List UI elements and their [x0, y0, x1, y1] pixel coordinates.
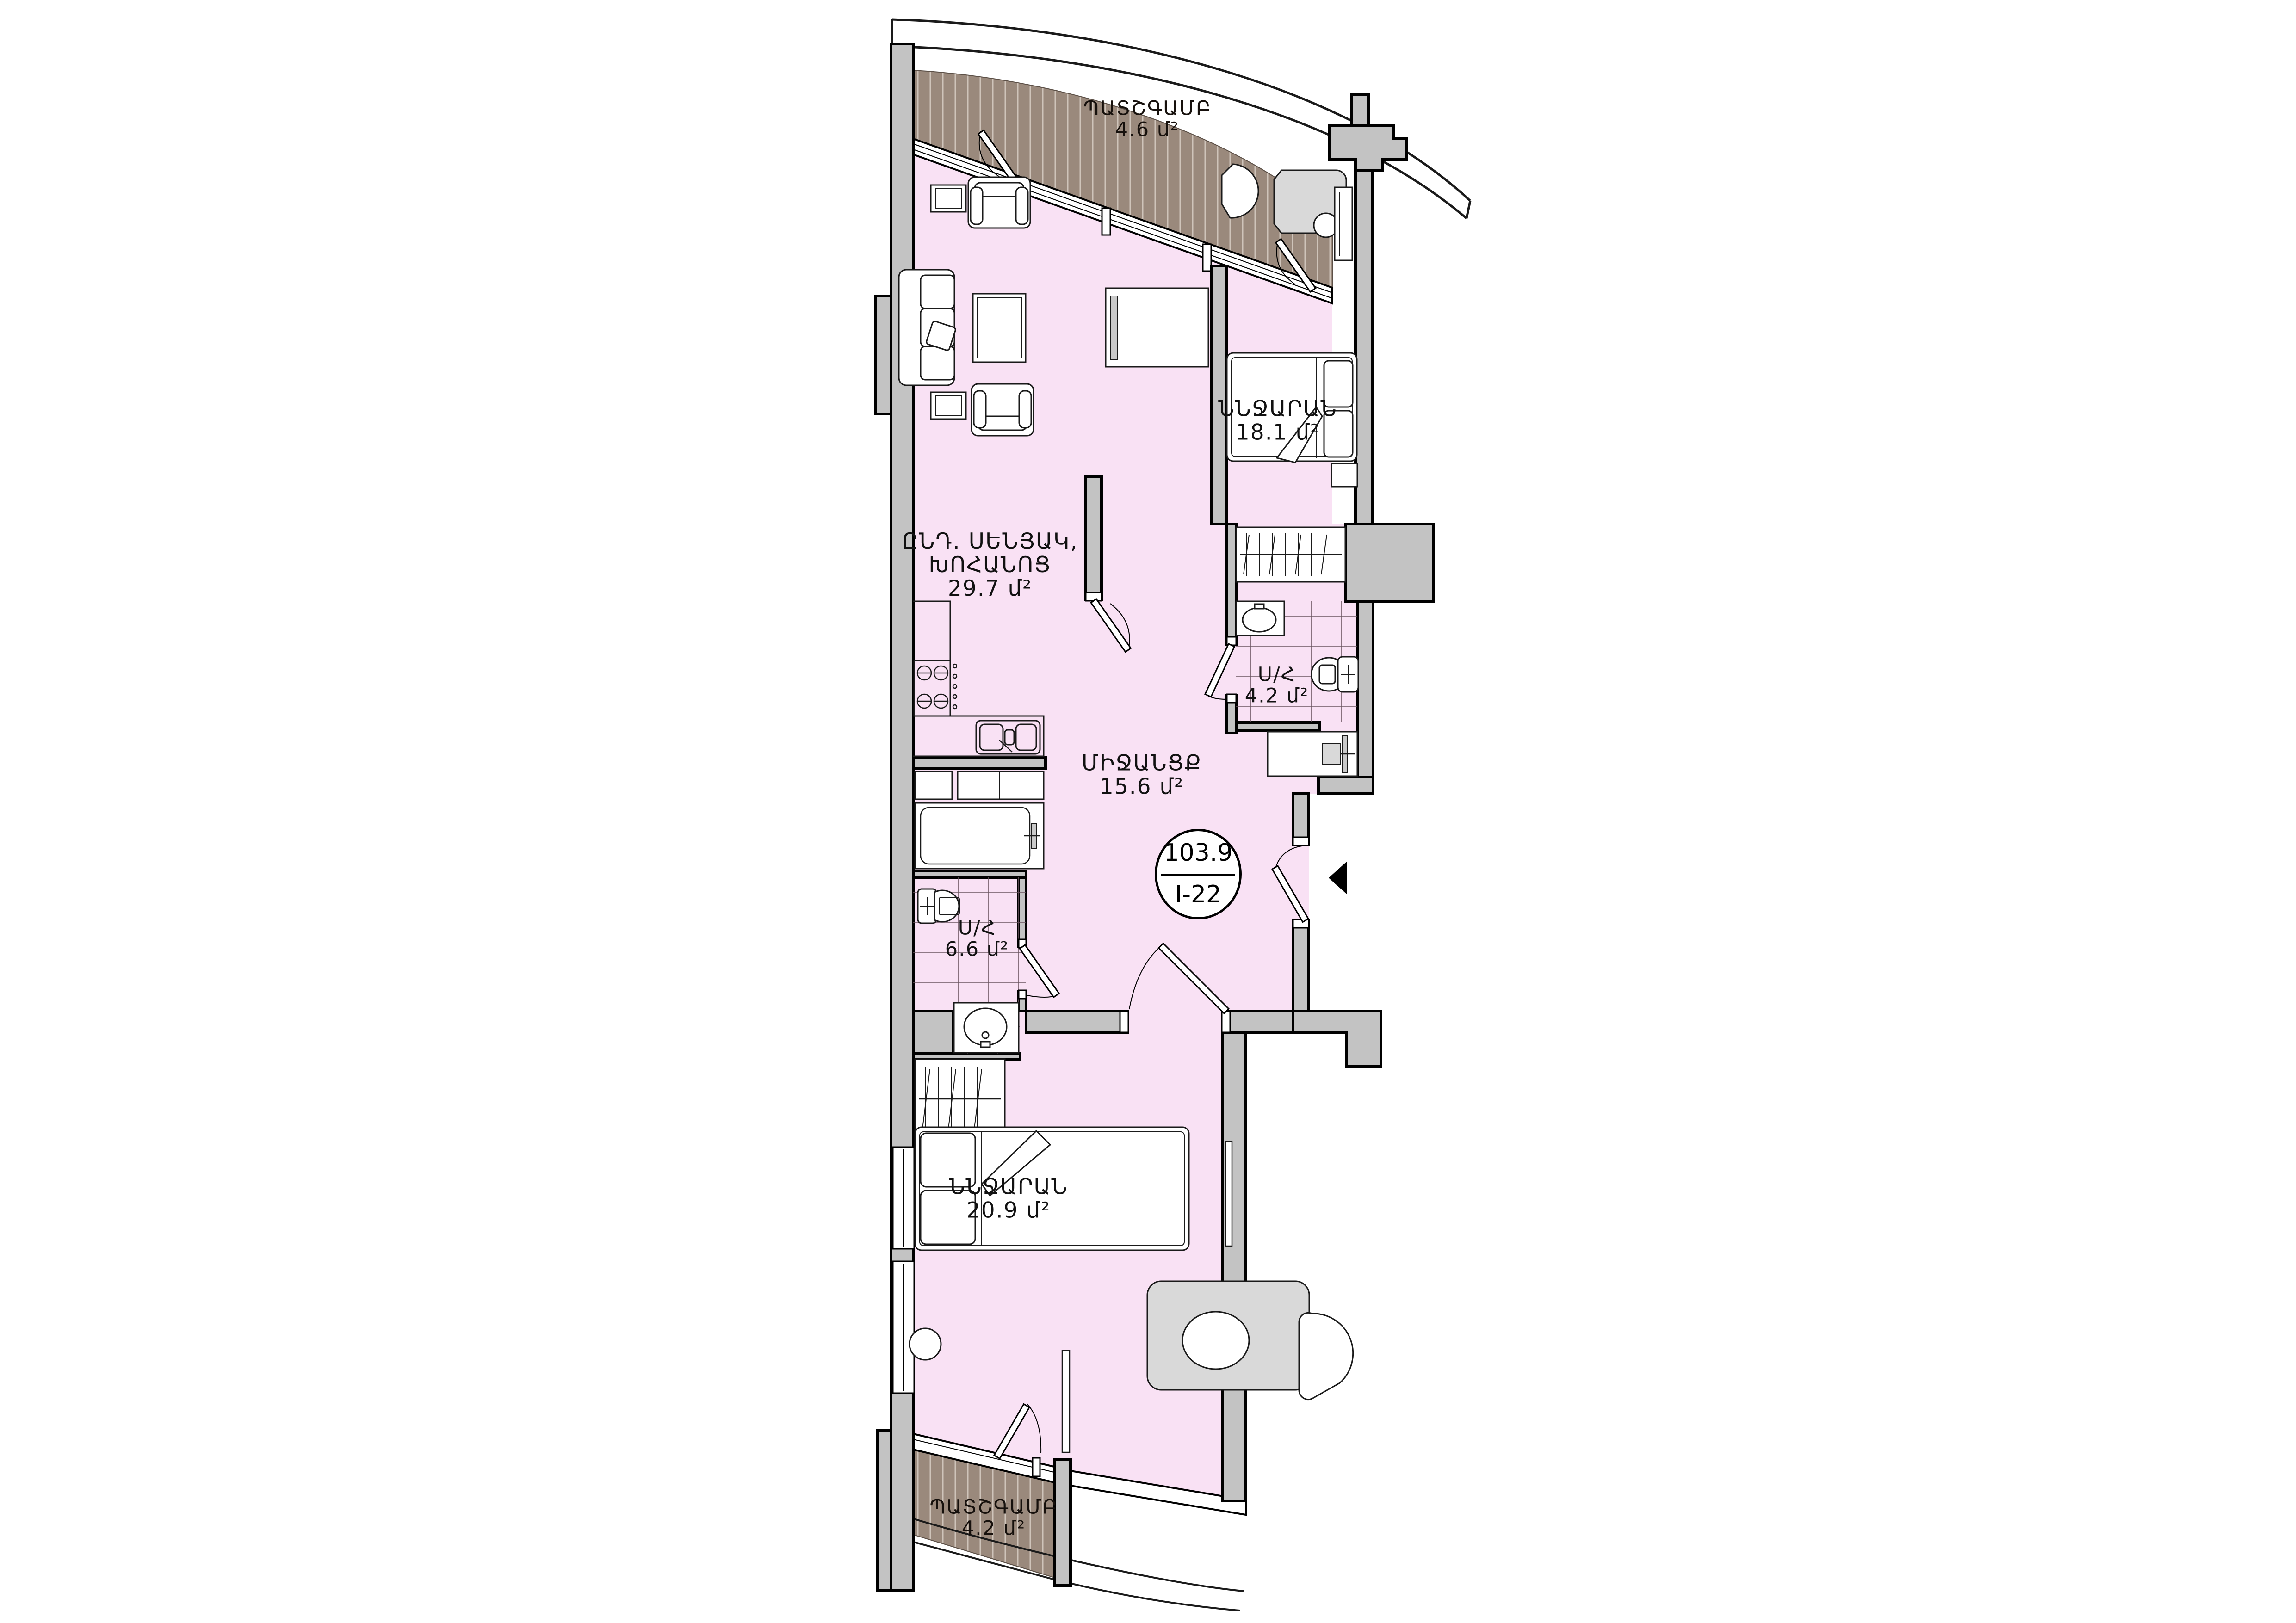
wall-kitchen-hall — [1086, 476, 1102, 600]
wall-bath-top-bottom — [1236, 722, 1319, 731]
pillar-stub — [1352, 95, 1368, 127]
room-area: 4.2 մ² — [929, 1518, 1058, 1539]
bedroom2-windows — [893, 1147, 914, 1393]
room-area: 4.6 մ² — [1083, 119, 1211, 141]
wardrobe-top — [1236, 527, 1345, 582]
room-label-bedroom-bottom: ՆՆՋԱՐԱՆ 20.9 մ² — [949, 1175, 1068, 1222]
wall-wardrobe-top — [913, 1054, 1020, 1059]
coffee-table — [973, 294, 1026, 362]
column-strip — [1062, 1351, 1070, 1452]
room-area: 18.1 մ² — [1218, 421, 1337, 444]
chair-bedroom2 — [1299, 1313, 1353, 1399]
room-name: ՊԱՏՇԳԱՄԲ — [1083, 98, 1211, 119]
tv-cabinet-living — [1106, 288, 1208, 367]
armchair-2 — [972, 384, 1034, 436]
room-name: ՆՆՋԱՐԱՆ — [949, 1175, 1068, 1199]
bathtub — [915, 803, 1044, 869]
wall-hall-bottom-left — [1026, 1011, 1127, 1032]
desk-bedroom2 — [1147, 1281, 1353, 1400]
unit-total-area: 103.9 — [1155, 839, 1242, 867]
wall-bath2-top — [913, 871, 1026, 877]
wall-right-bath — [1357, 601, 1373, 777]
room-label-balcony-bottom: ՊԱՏՇԳԱՄԲ 4.2 մ² — [929, 1497, 1058, 1540]
room-area: 4.2 մ² — [1245, 685, 1309, 707]
floor-plan-drawing — [0, 0, 2296, 1623]
pillar-top-right — [1329, 126, 1406, 170]
radiator-bedroom2 — [1225, 1142, 1232, 1246]
room-name: ՄԻՋԱՆՑՔ — [1082, 752, 1202, 775]
stove — [914, 660, 950, 716]
wall-hall-bottom-right — [1223, 1011, 1293, 1032]
wall-entry-bottom — [1293, 920, 1309, 1011]
wall-sink-nook — [913, 1011, 953, 1054]
room-name: ՆՆՋԱՐԱՆ — [1218, 397, 1337, 421]
cabinet-2 — [958, 771, 1044, 799]
unit-id: I-22 — [1155, 881, 1242, 908]
room-name: Ս/Հ — [1245, 664, 1309, 685]
entrance-arrow-icon — [1329, 861, 1347, 895]
kitchen-sink — [976, 721, 1040, 754]
room-area: 20.9 մ² — [949, 1199, 1068, 1222]
wall-kitchen-bottom — [913, 757, 1046, 769]
laundry-tub-block — [915, 771, 1044, 869]
room-name-line2: ԽՈՀԱՆՈՑ — [902, 554, 1078, 577]
room-label-hallway: ՄԻՋԱՆՑՔ 15.6 մ² — [1082, 752, 1202, 799]
room-label-bathroom-top: Ս/Հ 4.2 մ² — [1245, 664, 1309, 707]
sink-bath-top — [1236, 601, 1284, 636]
unit-badge: 103.9 I-22 — [1155, 829, 1242, 919]
room-area: 15.6 մ² — [1082, 775, 1202, 799]
room-label-living-kitchen: ԸՆԴ. ՍԵՆՅԱԿ, ԽՈՀԱՆՈՑ 29.7 մ² — [902, 530, 1078, 600]
tv-unit-bedroom1 — [1335, 187, 1352, 260]
cabinet-1 — [915, 771, 952, 799]
wall-bath-top-left-a — [1227, 524, 1236, 644]
sofa — [899, 270, 956, 385]
room-label-balcony-top: ՊԱՏՇԳԱՄԲ 4.6 մ² — [1083, 98, 1211, 141]
unit-badge-divider — [1161, 874, 1235, 876]
sink-bath-bottom — [954, 1003, 1019, 1053]
room-name-line1: ԸՆԴ. ՍԵՆՅԱԿ, — [902, 530, 1078, 554]
wall-block-right — [1345, 524, 1433, 601]
toilet-bath-top — [1312, 657, 1358, 692]
room-label-bedroom-top: ՆՆՋԱՐԱՆ 18.1 մ² — [1218, 397, 1337, 444]
room-name: Ս/Հ — [945, 918, 1009, 939]
wall-step-right — [1318, 777, 1373, 794]
room-label-bathroom-bottom: Ս/Հ 6.6 մ² — [945, 918, 1009, 961]
wall-bath2-right-a — [1019, 877, 1026, 947]
floor-plan-page: ՊԱՏՇԳԱՄԲ 4.6 մ² ՆՆՋԱՐԱՆ 18.1 մ² ԸՆԴ. ՍԵՆ… — [0, 0, 2296, 1623]
wall-left-bottom-step — [877, 1431, 891, 1590]
shower-bath-top — [1268, 732, 1357, 776]
armchair-1 — [968, 177, 1030, 228]
room-name: ՊԱՏՇԳԱՄԲ — [929, 1497, 1058, 1518]
round-table-bedroom2 — [910, 1328, 941, 1360]
nightstand-bedroom1 — [1331, 463, 1357, 487]
room-area: 29.7 մ² — [902, 577, 1078, 600]
wall-corner-block — [1293, 1011, 1381, 1066]
wall-right-bedroom2 — [1223, 1032, 1246, 1501]
wall-left-pier — [875, 296, 891, 414]
wall-living-bedroom — [1211, 266, 1227, 524]
room-area: 6.6 մ² — [945, 939, 1009, 960]
